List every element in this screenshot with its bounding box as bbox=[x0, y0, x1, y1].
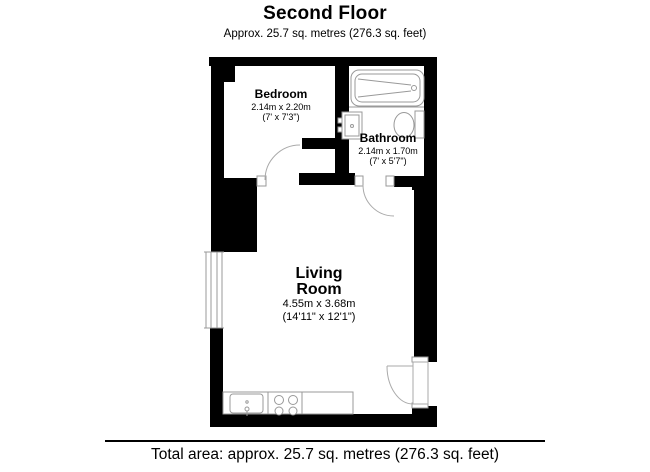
bathroom-door-jamb-right bbox=[386, 176, 394, 186]
bedroom-door-icon bbox=[265, 145, 300, 180]
wall-bathroom-door-pier bbox=[394, 176, 412, 187]
bathroom-door-jamb-left bbox=[355, 176, 363, 186]
wall-right-step bbox=[412, 176, 437, 190]
bedroom-dimensions-imperial: (7' x 7'3") bbox=[211, 112, 351, 122]
bathroom-label: Bathroom 2.14m x 1.70m (7' x 5'7") bbox=[318, 132, 458, 166]
bathroom-dimensions-imperial: (7' x 5'7") bbox=[318, 156, 458, 166]
kitchen-counter bbox=[223, 392, 353, 416]
living-room-dimensions-metric: 4.55m x 3.68m bbox=[249, 298, 389, 311]
kitchen-sink-icon bbox=[230, 394, 263, 416]
wall-top bbox=[209, 57, 437, 66]
bedroom-dimensions-metric: 2.14m x 2.20m bbox=[211, 102, 351, 112]
floorplan-page: Second Floor Approx. 25.7 sq. metres (27… bbox=[0, 0, 650, 472]
living-room-dimensions-imperial: (14'11" x 12'1") bbox=[249, 311, 389, 324]
entry-door-jamb-top bbox=[412, 357, 428, 362]
living-room-name-line1: Living bbox=[249, 266, 389, 282]
window-icon bbox=[204, 252, 224, 328]
entry-door-icon bbox=[387, 362, 428, 404]
bathtub-icon bbox=[349, 70, 424, 107]
living-room-name-line2: Room bbox=[249, 282, 389, 298]
wall-right-middle bbox=[414, 190, 437, 362]
living-room-label: Living Room 4.55m x 3.68m (14'11" x 12'1… bbox=[249, 266, 389, 323]
wall-notch-top-left bbox=[224, 66, 235, 82]
bedroom-name: Bedroom bbox=[211, 88, 351, 102]
total-area-caption: Total area: approx. 25.7 sq. metres (276… bbox=[0, 446, 650, 464]
floor-plan bbox=[0, 0, 650, 472]
wall-hall-bar bbox=[299, 173, 355, 185]
wall-left-lower bbox=[210, 328, 223, 420]
bathroom-dimensions-metric: 2.14m x 1.70m bbox=[318, 146, 458, 156]
wall-bottom bbox=[210, 414, 437, 427]
bathroom-door-icon bbox=[363, 185, 394, 216]
wall-left-block bbox=[211, 178, 257, 252]
bedroom-label: Bedroom 2.14m x 2.20m (7' x 7'3") bbox=[211, 88, 351, 122]
bathroom-name: Bathroom bbox=[318, 132, 458, 146]
